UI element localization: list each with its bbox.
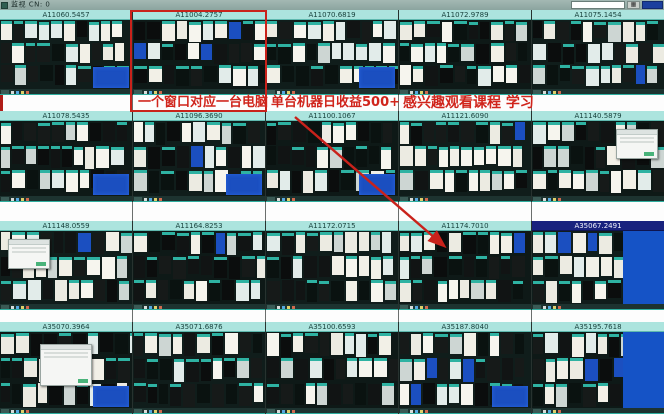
- screen-thumbnail[interactable]: [558, 232, 571, 253]
- screen-thumbnail[interactable]: [253, 146, 265, 168]
- screen-thumbnail[interactable]: [310, 358, 322, 378]
- screen-thumbnail[interactable]: [282, 66, 294, 82]
- taskbar-icon[interactable]: [11, 91, 14, 94]
- screen-thumbnail[interactable]: [267, 233, 280, 251]
- mini-taskbar[interactable]: [133, 408, 265, 414]
- screen-thumbnail[interactable]: [307, 44, 316, 60]
- screen-thumbnail[interactable]: [292, 147, 304, 165]
- screen-thumbnail[interactable]: [331, 281, 344, 301]
- screen-thumbnail[interactable]: [103, 122, 115, 142]
- screen-thumbnail[interactable]: [281, 384, 293, 404]
- screen-thumbnail[interactable]: [544, 21, 555, 39]
- screen-thumbnail[interactable]: [586, 170, 598, 191]
- screen-thumbnail[interactable]: [317, 147, 328, 168]
- screen-thumbnail[interactable]: [260, 65, 265, 83]
- screen-thumbnail[interactable]: [121, 233, 132, 253]
- taskbar-icon[interactable]: [144, 410, 147, 413]
- screen-thumbnail[interactable]: [346, 122, 356, 140]
- taskbar-icon[interactable]: [149, 306, 152, 309]
- screen-thumbnail[interactable]: [474, 147, 484, 165]
- mini-taskbar[interactable]: [266, 196, 398, 202]
- screen-thumbnail[interactable]: [533, 122, 546, 144]
- screen-thumbnail[interactable]: [66, 122, 75, 140]
- screen-thumbnail[interactable]: [80, 170, 89, 188]
- screen-thumbnail[interactable]: [38, 383, 47, 403]
- screen-thumbnail[interactable]: [345, 333, 354, 354]
- screen-thumbnail[interactable]: [615, 44, 624, 64]
- screen-thumbnail[interactable]: [241, 43, 252, 62]
- taskbar-icon[interactable]: [410, 306, 413, 309]
- start-button[interactable]: [1, 409, 9, 413]
- screen-thumbnail[interactable]: [106, 358, 116, 379]
- screen-thumbnail[interactable]: [267, 65, 280, 83]
- screen-thumbnail[interactable]: [306, 383, 315, 404]
- screen-thumbnail[interactable]: [292, 171, 301, 193]
- screen-thumbnail[interactable]: [222, 123, 231, 144]
- screen-thumbnail[interactable]: [544, 146, 556, 167]
- taskbar-icon[interactable]: [282, 91, 285, 94]
- screen-thumbnail[interactable]: [533, 384, 543, 406]
- taskbar-icon[interactable]: [292, 198, 295, 201]
- screen-thumbnail[interactable]: [437, 384, 447, 405]
- screen-thumbnail[interactable]: [476, 359, 485, 378]
- screen-thumbnail[interactable]: [173, 334, 182, 354]
- taskbar-icon[interactable]: [144, 306, 147, 309]
- screen-thumbnail[interactable]: [159, 384, 168, 404]
- desktop-area[interactable]: [623, 231, 664, 310]
- screen-thumbnail[interactable]: [546, 281, 557, 303]
- mini-taskbar[interactable]: [133, 196, 265, 202]
- screen-thumbnail[interactable]: [610, 384, 621, 406]
- screen-thumbnail[interactable]: [161, 171, 174, 190]
- screen-thumbnail[interactable]: [611, 171, 621, 193]
- taskbar-icon[interactable]: [277, 91, 280, 94]
- screen-thumbnail[interactable]: [340, 66, 352, 83]
- screen-thumbnail[interactable]: [205, 146, 214, 168]
- screen-thumbnail[interactable]: [1, 21, 12, 40]
- taskbar-icon[interactable]: [558, 410, 561, 413]
- screen-thumbnail[interactable]: [219, 65, 231, 83]
- screen-thumbnail[interactable]: [369, 43, 381, 61]
- screen-thumbnail[interactable]: [267, 333, 279, 356]
- screen-thumbnail[interactable]: [415, 171, 428, 190]
- screen-thumbnail[interactable]: [598, 334, 607, 354]
- screen-thumbnail[interactable]: [59, 257, 72, 276]
- screen-thumbnail[interactable]: [145, 333, 157, 353]
- start-button[interactable]: [400, 305, 408, 309]
- screen-thumbnail[interactable]: [159, 256, 171, 274]
- screen-thumbnail[interactable]: [212, 384, 224, 407]
- screen-thumbnail[interactable]: [448, 44, 459, 62]
- mini-taskbar[interactable]: [399, 408, 531, 414]
- screen-thumbnail[interactable]: [513, 281, 523, 299]
- screen-thumbnail[interactable]: [573, 171, 584, 189]
- screen-thumbnail[interactable]: [332, 43, 341, 59]
- taskbar-icon[interactable]: [277, 410, 280, 413]
- screen-thumbnail[interactable]: [636, 65, 645, 84]
- screen-thumbnail[interactable]: [383, 123, 392, 143]
- screen-thumbnail[interactable]: [533, 359, 544, 380]
- screen-thumbnail[interactable]: [66, 65, 76, 85]
- screen-thumbnail[interactable]: [130, 333, 132, 353]
- screen-thumbnail[interactable]: [184, 333, 195, 356]
- taskbar-icon[interactable]: [154, 410, 157, 413]
- machine-panel-header[interactable]: A11164.8253: [133, 221, 265, 231]
- screen-thumbnail[interactable]: [570, 358, 583, 379]
- screen-thumbnail[interactable]: [464, 257, 474, 277]
- screen-thumbnail[interactable]: [170, 280, 182, 299]
- screen-thumbnail[interactable]: [381, 147, 391, 169]
- screen-thumbnail[interactable]: [492, 171, 502, 190]
- screen-thumbnail[interactable]: [383, 43, 395, 63]
- screen-thumbnail[interactable]: [345, 232, 357, 253]
- screen-thumbnail[interactable]: [242, 256, 255, 277]
- screen-thumbnail[interactable]: [422, 256, 432, 274]
- taskbar-icon[interactable]: [420, 91, 423, 94]
- screen-thumbnail[interactable]: [236, 280, 249, 301]
- taskbar-icon[interactable]: [410, 198, 413, 201]
- start-button[interactable]: [533, 305, 541, 309]
- screen-thumbnail[interactable]: [516, 170, 527, 188]
- screen-thumbnail[interactable]: [442, 22, 452, 42]
- screen-thumbnail[interactable]: [572, 281, 581, 303]
- screen-thumbnail[interactable]: [148, 147, 160, 169]
- screen-thumbnail[interactable]: [134, 122, 143, 142]
- screen-thumbnail[interactable]: [134, 256, 145, 278]
- popup-dialog[interactable]: [40, 344, 92, 386]
- start-button[interactable]: [134, 90, 142, 94]
- screen-thumbnail[interactable]: [427, 358, 437, 378]
- screen-thumbnail[interactable]: [293, 123, 306, 142]
- screen-thumbnail[interactable]: [201, 359, 211, 381]
- screen-thumbnail[interactable]: [214, 257, 227, 278]
- machine-panel-header[interactable]: A35067.2491: [532, 221, 664, 231]
- screen-thumbnail[interactable]: [560, 256, 572, 274]
- screen-thumbnail[interactable]: [448, 122, 459, 142]
- taskbar-icon[interactable]: [415, 306, 418, 309]
- screen-thumbnail[interactable]: [636, 22, 645, 41]
- blue-screen-tile[interactable]: [359, 174, 395, 195]
- screen-thumbnail[interactable]: [253, 232, 262, 250]
- screen-thumbnail[interactable]: [400, 146, 413, 166]
- popup-dialog[interactable]: [616, 129, 658, 159]
- screen-thumbnail[interactable]: [164, 65, 174, 84]
- screen-thumbnail[interactable]: [413, 280, 422, 301]
- taskbar-icon[interactable]: [11, 198, 14, 201]
- screen-thumbnail[interactable]: [332, 256, 344, 275]
- screen-thumbnail[interactable]: [385, 281, 396, 300]
- screen-thumbnail[interactable]: [147, 359, 158, 379]
- screen-thumbnail[interactable]: [586, 66, 599, 86]
- screen-thumbnail[interactable]: [454, 21, 467, 40]
- screen-thumbnail[interactable]: [64, 21, 75, 41]
- screen-thumbnail[interactable]: [515, 358, 524, 377]
- screen-thumbnail[interactable]: [415, 146, 426, 166]
- screen-thumbnail[interactable]: [92, 43, 101, 60]
- screen-thumbnail[interactable]: [170, 384, 181, 406]
- screen-thumbnail[interactable]: [119, 281, 129, 300]
- taskbar-icon[interactable]: [21, 306, 24, 309]
- screen-thumbnail[interactable]: [502, 358, 513, 380]
- screen-thumbnail[interactable]: [74, 147, 83, 165]
- screen-thumbnail[interactable]: [12, 358, 22, 378]
- screen-thumbnail[interactable]: [49, 384, 62, 405]
- machine-panel-header[interactable]: A11174.7010: [399, 221, 531, 231]
- screen-thumbnail[interactable]: [455, 66, 465, 82]
- screen-thumbnail[interactable]: [480, 22, 489, 39]
- machine-panel-header[interactable]: A11060.5457: [0, 10, 132, 20]
- screen-thumbnail[interactable]: [513, 146, 522, 167]
- screen-thumbnail[interactable]: [317, 383, 327, 405]
- screen-thumbnail[interactable]: [149, 232, 160, 252]
- screen-thumbnail[interactable]: [516, 22, 527, 41]
- screen-thumbnail[interactable]: [196, 281, 207, 301]
- screen-thumbnail[interactable]: [162, 147, 175, 166]
- screen-thumbnail[interactable]: [576, 122, 586, 140]
- screen-thumbnail[interactable]: [282, 280, 294, 301]
- screen-thumbnail[interactable]: [346, 256, 357, 277]
- screen-thumbnail[interactable]: [28, 280, 41, 300]
- screen-thumbnail[interactable]: [281, 358, 293, 378]
- mini-taskbar[interactable]: [532, 89, 664, 95]
- screen-thumbnail[interactable]: [623, 22, 634, 42]
- screen-thumbnail[interactable]: [439, 147, 448, 167]
- taskbar-icon[interactable]: [415, 198, 418, 201]
- screen-thumbnail[interactable]: [411, 384, 421, 405]
- mini-taskbar[interactable]: [399, 196, 531, 202]
- screen-thumbnail[interactable]: [548, 43, 561, 62]
- screen-thumbnail[interactable]: [214, 44, 227, 64]
- screen-thumbnail[interactable]: [588, 233, 597, 251]
- screen-thumbnail[interactable]: [557, 22, 569, 40]
- screen-thumbnail[interactable]: [1, 383, 10, 402]
- screen-thumbnail[interactable]: [267, 358, 279, 378]
- screen-thumbnail[interactable]: [239, 383, 252, 406]
- screen-thumbnail[interactable]: [278, 146, 290, 164]
- screen-thumbnail[interactable]: [505, 21, 514, 41]
- screen-thumbnail[interactable]: [89, 22, 99, 41]
- screen-thumbnail[interactable]: [400, 333, 409, 354]
- screen-thumbnail[interactable]: [436, 122, 446, 143]
- taskbar-icon[interactable]: [282, 306, 285, 309]
- taskbar-icon[interactable]: [16, 91, 19, 94]
- taskbar-icon[interactable]: [410, 91, 413, 94]
- screen-thumbnail[interactable]: [356, 334, 366, 357]
- screen-thumbnail[interactable]: [26, 43, 35, 62]
- screen-thumbnail[interactable]: [215, 21, 227, 38]
- screen-thumbnail[interactable]: [13, 122, 22, 140]
- screen-thumbnail[interactable]: [533, 65, 545, 84]
- screen-thumbnail[interactable]: [1, 147, 10, 168]
- screen-thumbnail[interactable]: [576, 44, 586, 62]
- taskbar-icon[interactable]: [425, 306, 428, 309]
- screen-thumbnail[interactable]: [369, 146, 379, 164]
- taskbar-icon[interactable]: [287, 198, 290, 201]
- screen-thumbnail[interactable]: [134, 359, 145, 378]
- taskbar-icon[interactable]: [154, 198, 157, 201]
- screen-thumbnail[interactable]: [177, 146, 189, 168]
- screen-thumbnail[interactable]: [229, 22, 241, 39]
- screen-thumbnail[interactable]: [336, 359, 345, 379]
- taskbar-icon[interactable]: [16, 306, 19, 309]
- screen-thumbnail[interactable]: [282, 233, 294, 255]
- screen-thumbnail[interactable]: [92, 359, 104, 380]
- screen-thumbnail[interactable]: [425, 43, 435, 62]
- screen-thumbnail[interactable]: [66, 44, 78, 62]
- screen-thumbnail[interactable]: [623, 65, 634, 82]
- screen-thumbnail[interactable]: [626, 44, 638, 63]
- screen-thumbnail[interactable]: [601, 66, 610, 83]
- screen-thumbnail[interactable]: [295, 384, 304, 405]
- screen-thumbnail[interactable]: [305, 333, 318, 353]
- machine-panel-header[interactable]: A11140.5879: [532, 111, 664, 121]
- screen-thumbnail[interactable]: [623, 170, 636, 189]
- screen-thumbnail[interactable]: [343, 43, 354, 60]
- screen-thumbnail[interactable]: [117, 256, 127, 278]
- screen-thumbnail[interactable]: [51, 146, 60, 168]
- screen-thumbnail[interactable]: [449, 384, 459, 403]
- screen-thumbnail[interactable]: [569, 383, 581, 403]
- screen-thumbnail[interactable]: [78, 233, 91, 252]
- screen-thumbnail[interactable]: [95, 280, 105, 301]
- screen-thumbnail[interactable]: [228, 147, 240, 168]
- start-button[interactable]: [400, 409, 408, 413]
- layout-grid-button[interactable]: ▦: [627, 1, 640, 9]
- screen-thumbnail[interactable]: [586, 333, 596, 353]
- screen-thumbnail[interactable]: [78, 66, 91, 82]
- screen-thumbnail[interactable]: [77, 21, 87, 37]
- taskbar-icon[interactable]: [425, 410, 428, 413]
- screen-thumbnail[interactable]: [464, 333, 476, 356]
- taskbar-icon[interactable]: [287, 410, 290, 413]
- screen-thumbnail[interactable]: [158, 280, 168, 300]
- screen-thumbnail[interactable]: [308, 22, 321, 39]
- screen-thumbnail[interactable]: [545, 232, 556, 253]
- screen-thumbnail[interactable]: [596, 147, 605, 168]
- screen-thumbnail[interactable]: [450, 146, 459, 166]
- screen-thumbnail[interactable]: [598, 383, 608, 402]
- taskbar-icon[interactable]: [425, 198, 428, 201]
- screen-thumbnail[interactable]: [389, 359, 398, 381]
- screen-thumbnail[interactable]: [311, 66, 323, 86]
- screen-thumbnail[interactable]: [414, 359, 425, 380]
- screen-thumbnail[interactable]: [162, 232, 175, 250]
- screen-thumbnail[interactable]: [134, 66, 147, 83]
- screen-thumbnail[interactable]: [281, 334, 291, 357]
- screen-thumbnail[interactable]: [467, 66, 476, 84]
- screen-thumbnail[interactable]: [227, 233, 236, 255]
- blue-screen-tile[interactable]: [93, 67, 129, 88]
- screen-thumbnail[interactable]: [438, 281, 447, 302]
- taskbar-icon[interactable]: [144, 91, 147, 94]
- taskbar-icon[interactable]: [543, 410, 546, 413]
- screen-thumbnail[interactable]: [253, 334, 262, 353]
- screen-thumbnail[interactable]: [347, 358, 357, 377]
- screen-thumbnail[interactable]: [296, 281, 305, 300]
- screen-thumbnail[interactable]: [1, 171, 10, 192]
- screen-thumbnail[interactable]: [585, 147, 594, 169]
- taskbar-icon[interactable]: [26, 91, 29, 94]
- screen-thumbnail[interactable]: [40, 170, 50, 189]
- machine-panel-header[interactable]: A35070.3964: [0, 322, 132, 332]
- screen-thumbnail[interactable]: [506, 65, 517, 83]
- taskbar-icon[interactable]: [553, 306, 556, 309]
- screen-thumbnail[interactable]: [329, 384, 341, 405]
- taskbar-icon[interactable]: [548, 306, 551, 309]
- blue-screen-tile[interactable]: [226, 174, 262, 195]
- screen-thumbnail[interactable]: [572, 334, 584, 357]
- screen-thumbnail[interactable]: [248, 66, 258, 86]
- screen-thumbnail[interactable]: [434, 257, 447, 277]
- taskbar-icon[interactable]: [553, 198, 556, 201]
- screen-thumbnail[interactable]: [146, 280, 156, 298]
- screen-thumbnail[interactable]: [197, 384, 210, 403]
- screen-thumbnail[interactable]: [87, 257, 100, 275]
- screen-thumbnail[interactable]: [359, 232, 369, 251]
- screen-thumbnail[interactable]: [533, 21, 542, 38]
- screen-thumbnail[interactable]: [344, 147, 354, 169]
- screen-thumbnail[interactable]: [449, 280, 458, 299]
- screen-thumbnail[interactable]: [548, 122, 560, 140]
- mini-taskbar[interactable]: [399, 89, 531, 95]
- screen-thumbnail[interactable]: [548, 170, 557, 190]
- screen-thumbnail[interactable]: [384, 21, 396, 39]
- taskbar-icon[interactable]: [21, 198, 24, 201]
- screen-thumbnail[interactable]: [400, 43, 409, 61]
- screen-thumbnail[interactable]: [368, 334, 377, 354]
- screen-thumbnail[interactable]: [609, 334, 619, 357]
- screen-thumbnail[interactable]: [186, 359, 199, 382]
- screen-thumbnail[interactable]: [66, 170, 78, 192]
- screen-thumbnail[interactable]: [456, 170, 467, 192]
- screen-thumbnail[interactable]: [411, 233, 422, 252]
- screen-thumbnail[interactable]: [382, 232, 391, 253]
- machine-panel-header[interactable]: A11078.5435: [0, 111, 132, 121]
- screen-thumbnail[interactable]: [254, 44, 265, 60]
- machine-panel-header[interactable]: A11070.6819: [266, 10, 398, 20]
- screen-thumbnail[interactable]: [145, 122, 154, 142]
- screen-thumbnail[interactable]: [85, 147, 94, 169]
- screen-thumbnail[interactable]: [1, 123, 11, 144]
- screen-thumbnail[interactable]: [545, 384, 554, 404]
- screen-thumbnail[interactable]: [1, 281, 11, 301]
- screen-thumbnail[interactable]: [571, 146, 583, 164]
- screen-thumbnail[interactable]: [226, 384, 237, 404]
- machine-panel-header[interactable]: A11100.1067: [266, 111, 398, 121]
- blue-screen-tile[interactable]: [359, 67, 395, 88]
- screen-thumbnail[interactable]: [303, 171, 313, 193]
- screen-thumbnail[interactable]: [225, 333, 238, 354]
- taskbar-icon[interactable]: [21, 410, 24, 413]
- taskbar-icon[interactable]: [16, 410, 19, 413]
- taskbar-icon[interactable]: [548, 198, 551, 201]
- screen-thumbnail[interactable]: [134, 147, 146, 167]
- screen-thumbnail[interactable]: [518, 43, 527, 61]
- screen-thumbnail[interactable]: [216, 233, 225, 254]
- start-button[interactable]: [267, 90, 275, 94]
- taskbar-icon[interactable]: [420, 306, 423, 309]
- screen-thumbnail[interactable]: [293, 43, 305, 62]
- screen-thumbnail[interactable]: [156, 123, 165, 145]
- screen-thumbnail[interactable]: [533, 147, 542, 169]
- screen-thumbnail[interactable]: [400, 257, 409, 279]
- screen-thumbnail[interactable]: [134, 383, 146, 402]
- blue-screen-tile[interactable]: [93, 386, 129, 407]
- screen-thumbnail[interactable]: [356, 146, 367, 167]
- screen-thumbnail[interactable]: [12, 146, 24, 164]
- screen-thumbnail[interactable]: [450, 359, 461, 379]
- taskbar-icon[interactable]: [548, 410, 551, 413]
